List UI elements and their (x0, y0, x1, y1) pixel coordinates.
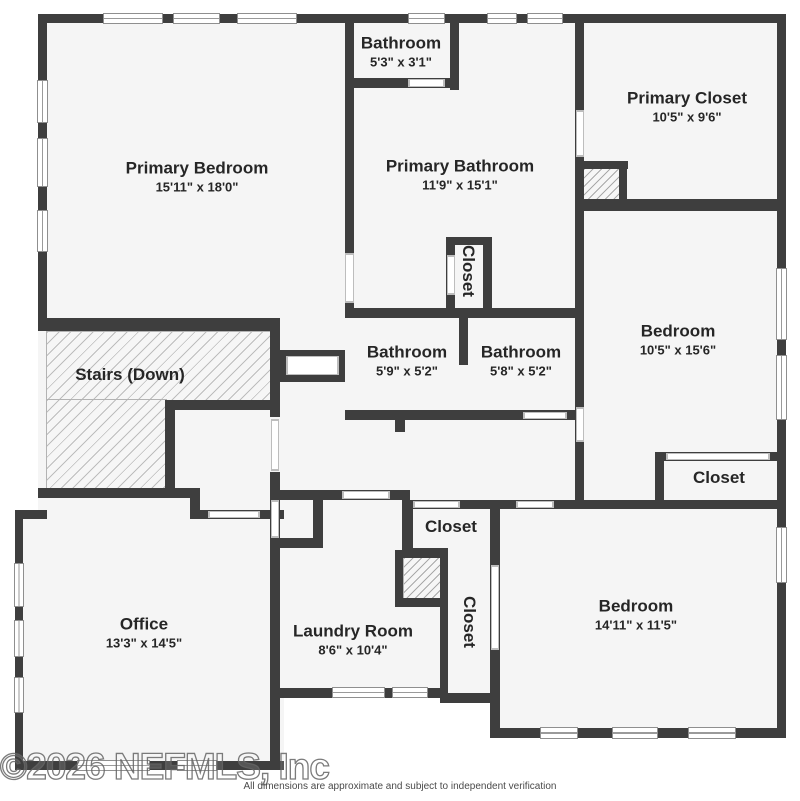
door-bathroom-right (523, 412, 567, 419)
wall-primary-closet-bottom (575, 199, 786, 211)
door-closet-tall (491, 565, 499, 650)
wall-primary-bath-bottom (345, 308, 584, 318)
room-label-closet-tall: Closet (459, 596, 479, 648)
disclaimer-text: All dimensions are approximate and subje… (244, 781, 557, 792)
window-right-1 (776, 268, 787, 340)
room-name: Bathroom (367, 342, 447, 364)
wall-primary-bedroom-bottom (38, 318, 280, 331)
window-top-3 (237, 13, 297, 24)
door-closet-bedmid (666, 453, 770, 460)
wall-closet-mid-right (483, 237, 492, 312)
wall-stairs-inner-vertical (165, 400, 175, 497)
door-bathroom-top (408, 79, 445, 87)
room-label-bedroom-mid: Bedroom 10'5" x 15'6" (640, 321, 716, 360)
window-top-1 (103, 13, 163, 24)
window-office-left-2 (14, 620, 24, 657)
window-bedroom-bottom-1 (540, 727, 578, 739)
room-dims: 14'11" x 11'5" (595, 618, 677, 635)
door-bedroom-bottom (516, 501, 554, 508)
door-bedroom-mid (576, 407, 584, 442)
room-label-bedroom-bottom: Bedroom 14'11" x 11'5" (595, 596, 677, 635)
window-top-pbath-2 (527, 13, 563, 24)
window-top-2 (173, 13, 220, 24)
wall-bath-separator (459, 318, 468, 365)
wall-closet-bedmid-left (655, 452, 664, 509)
room-name: Bathroom (481, 342, 561, 364)
room-label-laundry: Laundry Room 8'6" x 10'4" (293, 621, 413, 660)
window-bedroom-bottom-2 (612, 727, 658, 739)
window-office-left-3 (14, 677, 24, 713)
room-name: Primary Closet (627, 88, 747, 110)
room-name: Stairs (Down) (75, 364, 185, 386)
wall-chase-right (619, 161, 627, 207)
room-label-bathroom-top: Bathroom 5'3" x 3'1" (361, 33, 441, 72)
room-name: Closet (425, 516, 477, 538)
wall-stairs-bottom (38, 488, 198, 498)
room-label-office: Office 13'3" x 14'5" (106, 614, 182, 653)
room-dims: 13'3" x 14'5" (106, 636, 182, 653)
room-label-bathroom-left: Bathroom 5'9" x 5'2" (367, 342, 447, 381)
door-corridor (286, 356, 339, 375)
room-name: Bedroom (640, 321, 716, 343)
door-closet-mid (447, 255, 455, 295)
door-primary-bathroom (345, 253, 354, 303)
door-office (208, 511, 260, 518)
door-closet-hall (413, 501, 460, 508)
room-label-primary-bathroom: Primary Bathroom 11'9" x 15'1" (386, 156, 534, 195)
window-left-1 (37, 80, 48, 123)
room-label-stairs: Stairs (Down) (75, 364, 185, 386)
window-laundry-1 (332, 687, 385, 698)
room-name: Primary Bedroom (126, 158, 269, 180)
room-name: Laundry Room (293, 621, 413, 643)
room-label-bathroom-right: Bathroom 5'8" x 5'2" (481, 342, 561, 381)
room-label-closet-bedmid: Closet (693, 467, 745, 489)
room-label-closet-mid: Closet (458, 245, 478, 297)
room-label-primary-closet: Primary Closet 10'5" x 9'6" (627, 88, 747, 127)
room-dims: 5'8" x 5'2" (481, 364, 561, 381)
window-laundry-2 (392, 687, 428, 698)
room-dims: 8'6" x 10'4" (293, 643, 413, 660)
chase-hatch-laundry (403, 557, 442, 600)
wall-jamb-hall (395, 420, 405, 432)
window-right-2 (776, 355, 787, 420)
door-hall-stairs (271, 419, 279, 471)
window-right-3 (776, 527, 787, 583)
door-primary-closet (576, 110, 584, 157)
door-laundry-nook (271, 500, 279, 538)
room-dims: 10'5" x 9'6" (627, 110, 747, 127)
room-dims: 15'11" x 18'0" (126, 180, 269, 197)
window-office-left-1 (14, 563, 24, 607)
room-name: Closet (693, 467, 745, 489)
window-top-pbath-1 (487, 13, 517, 24)
room-dims: 5'3" x 3'1" (361, 55, 441, 72)
room-dims: 5'9" x 5'2" (367, 364, 447, 381)
room-label-closet-hall: Closet (425, 516, 477, 538)
wall-laundry-nook-horizontal (270, 538, 323, 548)
door-laundry (342, 491, 390, 499)
room-label-primary-bedroom: Primary Bedroom 15'11" x 18'0" (126, 158, 269, 197)
window-left-3 (37, 210, 48, 252)
window-top-bathroom (408, 13, 445, 24)
room-dims: 10'5" x 15'6" (640, 343, 716, 360)
stairs-hatch-lower (46, 399, 167, 490)
room-dims: 11'9" x 15'1" (386, 178, 534, 195)
room-name: Office (106, 614, 182, 636)
room-name: Primary Bathroom (386, 156, 534, 178)
window-bedroom-bottom-3 (688, 727, 736, 739)
wall-stairs-inner-horizontal (165, 400, 280, 410)
floor-plan: Primary Bedroom 15'11" x 18'0" Bathroom … (0, 0, 800, 801)
wall-closet-tall-left (440, 557, 448, 703)
window-left-2 (37, 138, 48, 187)
room-name: Bathroom (361, 33, 441, 55)
room-name: Bedroom (595, 596, 677, 618)
